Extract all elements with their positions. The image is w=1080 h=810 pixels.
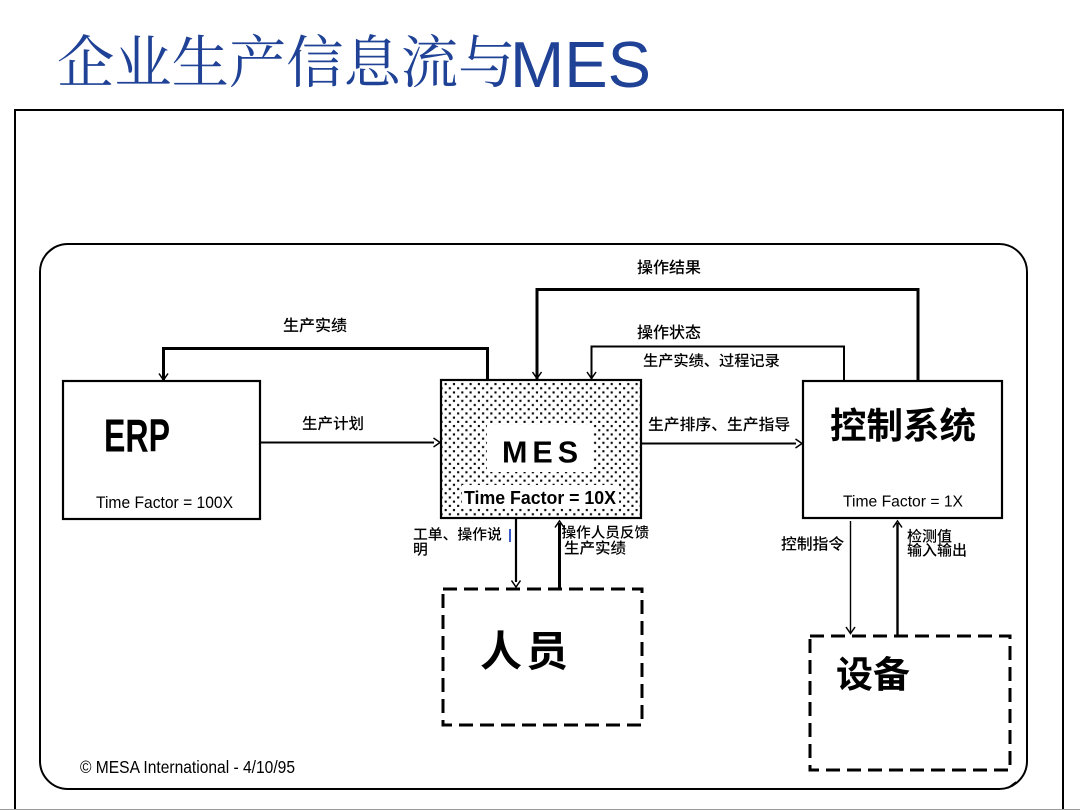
svg-text:ERP: ERP (104, 410, 170, 462)
svg-text:Time Factor = 10X: Time Factor = 10X (464, 487, 617, 508)
svg-text:© MESA International - 4/10/95: © MESA International - 4/10/95 (80, 757, 295, 777)
svg-text:Time Factor = 100X: Time Factor = 100X (96, 493, 233, 512)
svg-text:MES: MES (510, 28, 651, 101)
svg-text:MES: MES (502, 436, 583, 470)
svg-text:Time Factor = 1X: Time Factor = 1X (843, 494, 964, 511)
